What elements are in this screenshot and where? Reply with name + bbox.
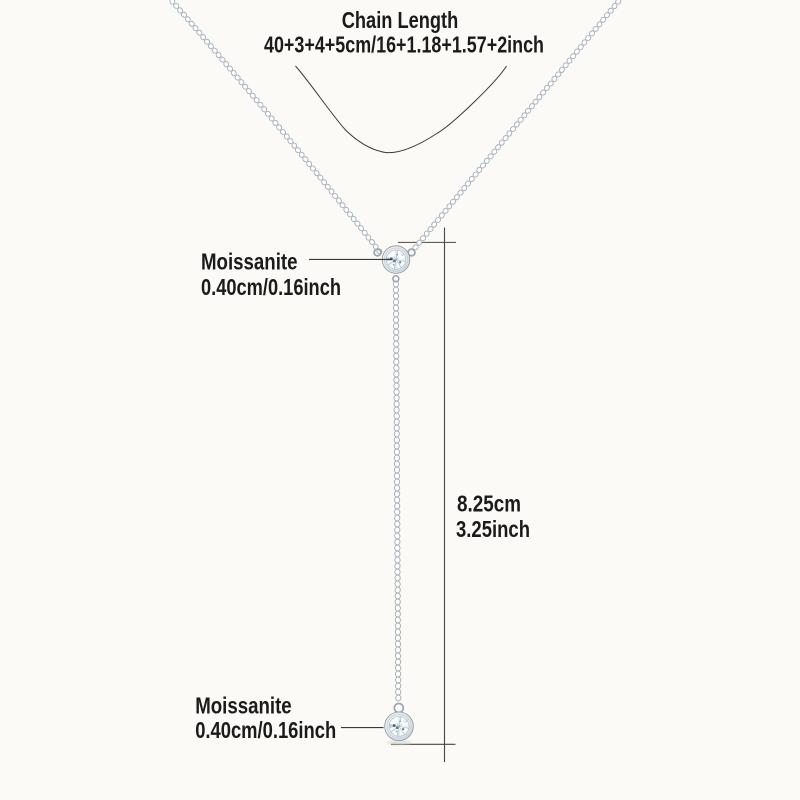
svg-text:0.40cm/0.16inch: 0.40cm/0.16inch bbox=[201, 274, 341, 300]
svg-text:0.40cm/0.16inch: 0.40cm/0.16inch bbox=[195, 717, 336, 743]
svg-text:40+3+4+5cm/16+1.18+1.57+2inch: 40+3+4+5cm/16+1.18+1.57+2inch bbox=[264, 31, 544, 57]
svg-text:Chain Length: Chain Length bbox=[342, 7, 459, 33]
svg-text:8.25cm: 8.25cm bbox=[457, 490, 521, 516]
svg-text:3.25inch: 3.25inch bbox=[456, 516, 530, 542]
svg-text:Moissanite: Moissanite bbox=[201, 248, 298, 274]
svg-text:Moissanite: Moissanite bbox=[195, 693, 292, 719]
